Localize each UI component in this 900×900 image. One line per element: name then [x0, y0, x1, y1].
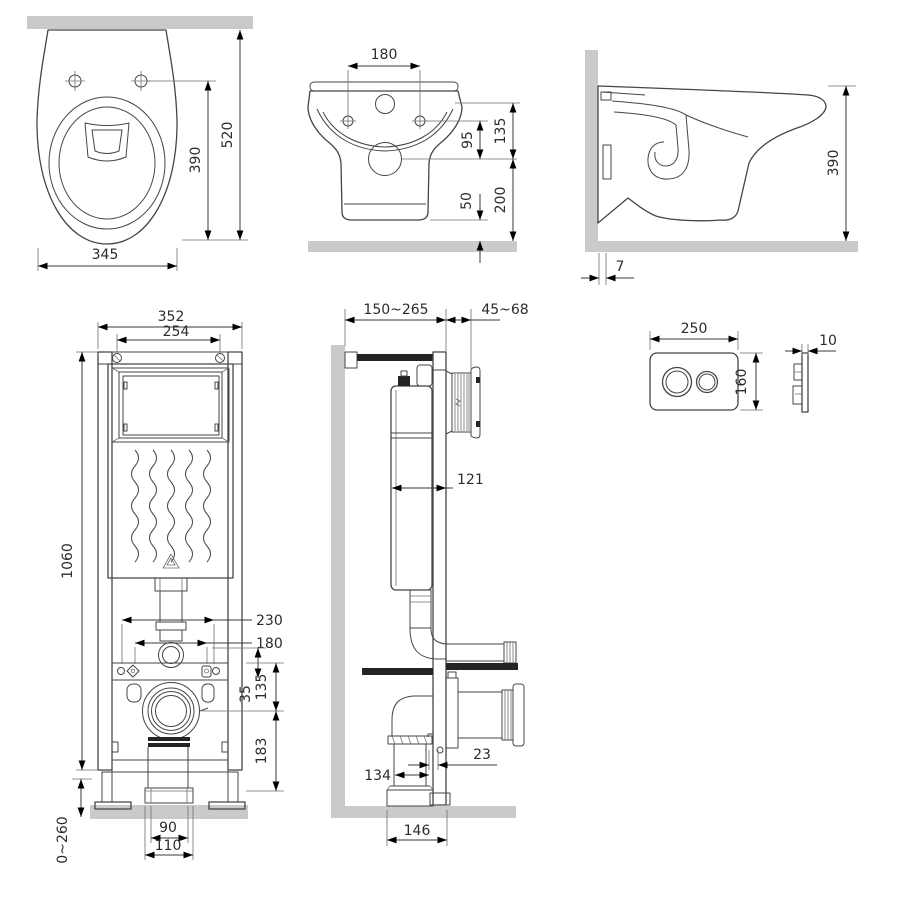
small-flush-button-inner: [699, 374, 715, 390]
bowl-inner-curve: [686, 115, 748, 137]
mounting-rail: [112, 663, 228, 680]
cistern-frame-side-view: 150~265 45~68 121 23 134 146: [331, 302, 529, 846]
dim-label: 7: [616, 259, 625, 275]
fill-valve-cap: [398, 376, 410, 386]
flush-plate-view: 250 160 10: [650, 321, 837, 412]
dim-label: 200: [493, 187, 509, 214]
dim-label: 183: [254, 738, 270, 765]
bowl-profile: [598, 86, 826, 223]
dim-height: 390: [826, 86, 856, 241]
mounting-hole-left: [340, 113, 356, 129]
rail-cap: [433, 352, 446, 370]
dim-label: 180: [371, 47, 398, 63]
dim-label: 35: [238, 685, 254, 703]
dim-label: 250: [681, 321, 708, 337]
flush-opening-inner: [92, 130, 122, 154]
dim-label: 95: [460, 131, 476, 149]
dim-thickness: 10: [785, 333, 837, 356]
dim-rail-offset: 23: [408, 747, 497, 770]
dim-label: 146: [404, 823, 431, 839]
bracket-lower: [603, 145, 611, 179]
dim-holes-to-outlet: 95: [426, 121, 488, 159]
dim-outlet-to-base: 183: [246, 711, 284, 791]
floor-section: [331, 806, 516, 818]
dim-label: 352: [158, 309, 185, 325]
dim-stud-spacing: 180: [135, 636, 283, 664]
dim-label: 1060: [60, 543, 76, 579]
flush-valve-housing: [417, 365, 432, 386]
dim-label: 520: [220, 122, 236, 149]
rail-mark-right: [222, 742, 228, 752]
dim-holes-to-front: 390: [148, 81, 248, 240]
rim-curve-2: [323, 112, 447, 147]
wall-section: [585, 50, 598, 252]
dim-label: 121: [457, 472, 484, 488]
plate-side-view: [793, 353, 808, 412]
big-flush-button-inner: [666, 371, 688, 393]
dim-tank-depth: 121: [392, 472, 484, 491]
actuator-sleeve: [446, 367, 480, 438]
dim-hole-spacing: 180: [348, 47, 420, 114]
bracket-bar-front: [446, 663, 518, 670]
dim-rim-to-outlet: 135: [455, 103, 520, 159]
dim-label: 23: [473, 747, 491, 763]
rim-top: [310, 82, 458, 91]
flush-bend: [410, 590, 516, 663]
dim-label: 135: [493, 118, 509, 145]
dim-height: 1060: [60, 352, 98, 770]
bracket-bar-rear: [362, 668, 433, 675]
wall-section: [27, 16, 253, 29]
dim-drain-offset: 134: [364, 768, 429, 784]
dim-label: 10: [819, 333, 837, 349]
mounting-hole-right: [412, 113, 428, 129]
dim-label: 50: [459, 192, 475, 210]
bracket-upper: [601, 92, 611, 100]
dim-label: 0~260: [55, 816, 71, 863]
dim-bottom-clearance: 50: [430, 192, 488, 263]
inspection-window: [112, 368, 229, 442]
bowl-outline: [308, 91, 462, 220]
leg-left: [102, 772, 112, 802]
dim-inner-width: 254: [117, 324, 220, 352]
dim-label: 390: [188, 147, 204, 174]
recycling-icon: [163, 554, 179, 568]
dim-label: 390: [826, 150, 842, 177]
cistern-tank: [391, 365, 432, 590]
cistern-frame-front-view: 352 254 1060 0~260 230: [55, 309, 284, 864]
toilet-front-view: 180 95 135 200 50: [308, 47, 520, 263]
flush-pipe: [155, 578, 187, 668]
dim-label: 345: [92, 247, 119, 263]
screw-left: [113, 354, 122, 363]
wall-anchor: [345, 352, 357, 368]
installation-diagram: 345 390 520: [0, 0, 900, 900]
frame-rail-right: [228, 352, 242, 770]
rail-mark-left: [112, 742, 118, 752]
bowl-outline: [37, 30, 177, 244]
drain-template: [145, 788, 193, 803]
dim-wall-to-front: 520: [220, 30, 243, 240]
dim-label: 135: [254, 674, 270, 701]
plate-front: [650, 353, 738, 410]
bowl-rim-outer: [49, 97, 165, 229]
dim-outlet-height: 200: [493, 159, 516, 241]
flush-opening-outer: [85, 123, 129, 161]
dim-label: 254: [163, 324, 190, 340]
bracket-slot-left: [127, 684, 141, 702]
dim-label: 230: [256, 613, 283, 629]
dim-label: 180: [256, 636, 283, 652]
insulation-waves: [132, 450, 211, 562]
big-flush-button: [663, 368, 692, 397]
screw-right: [216, 354, 225, 363]
floor-section: [90, 805, 248, 819]
dim-label: 134: [364, 768, 391, 784]
bracket-slot-right: [202, 684, 214, 702]
dim-leg-range: 0~260: [55, 779, 92, 864]
rim-seam: [602, 92, 645, 95]
leg-right: [228, 772, 238, 802]
frame-rail-left: [98, 352, 112, 770]
drain-connector: [446, 672, 524, 748]
floor-section: [585, 241, 858, 252]
mounting-hole-left: [65, 71, 85, 91]
dim-wall-gap: 7: [581, 253, 634, 285]
bottom-crossbar: [112, 760, 228, 772]
toilet-top-view: 345 390 520: [27, 16, 253, 271]
bowl-rim-inner: [59, 107, 155, 219]
drain-elbow: [387, 696, 443, 806]
small-flush-button: [697, 372, 718, 393]
dim-label: 90: [159, 820, 177, 836]
wall-section: [331, 345, 345, 818]
dim-width: 250: [650, 321, 738, 350]
dim-label: 45~68: [481, 302, 528, 318]
inlet-hole: [376, 95, 395, 114]
support-rod: [357, 354, 433, 361]
floor-section: [308, 241, 517, 252]
dim-label: 160: [734, 369, 750, 396]
frame-rail: [433, 352, 446, 805]
installation-drawing-page: 345 390 520: [0, 0, 900, 900]
dim-label: 150~265: [363, 302, 428, 318]
trap-inner: [614, 112, 678, 166]
toilet-side-view: 390 7: [581, 50, 858, 285]
dim-width: 345: [38, 247, 177, 271]
dim-label: 110: [155, 838, 182, 854]
